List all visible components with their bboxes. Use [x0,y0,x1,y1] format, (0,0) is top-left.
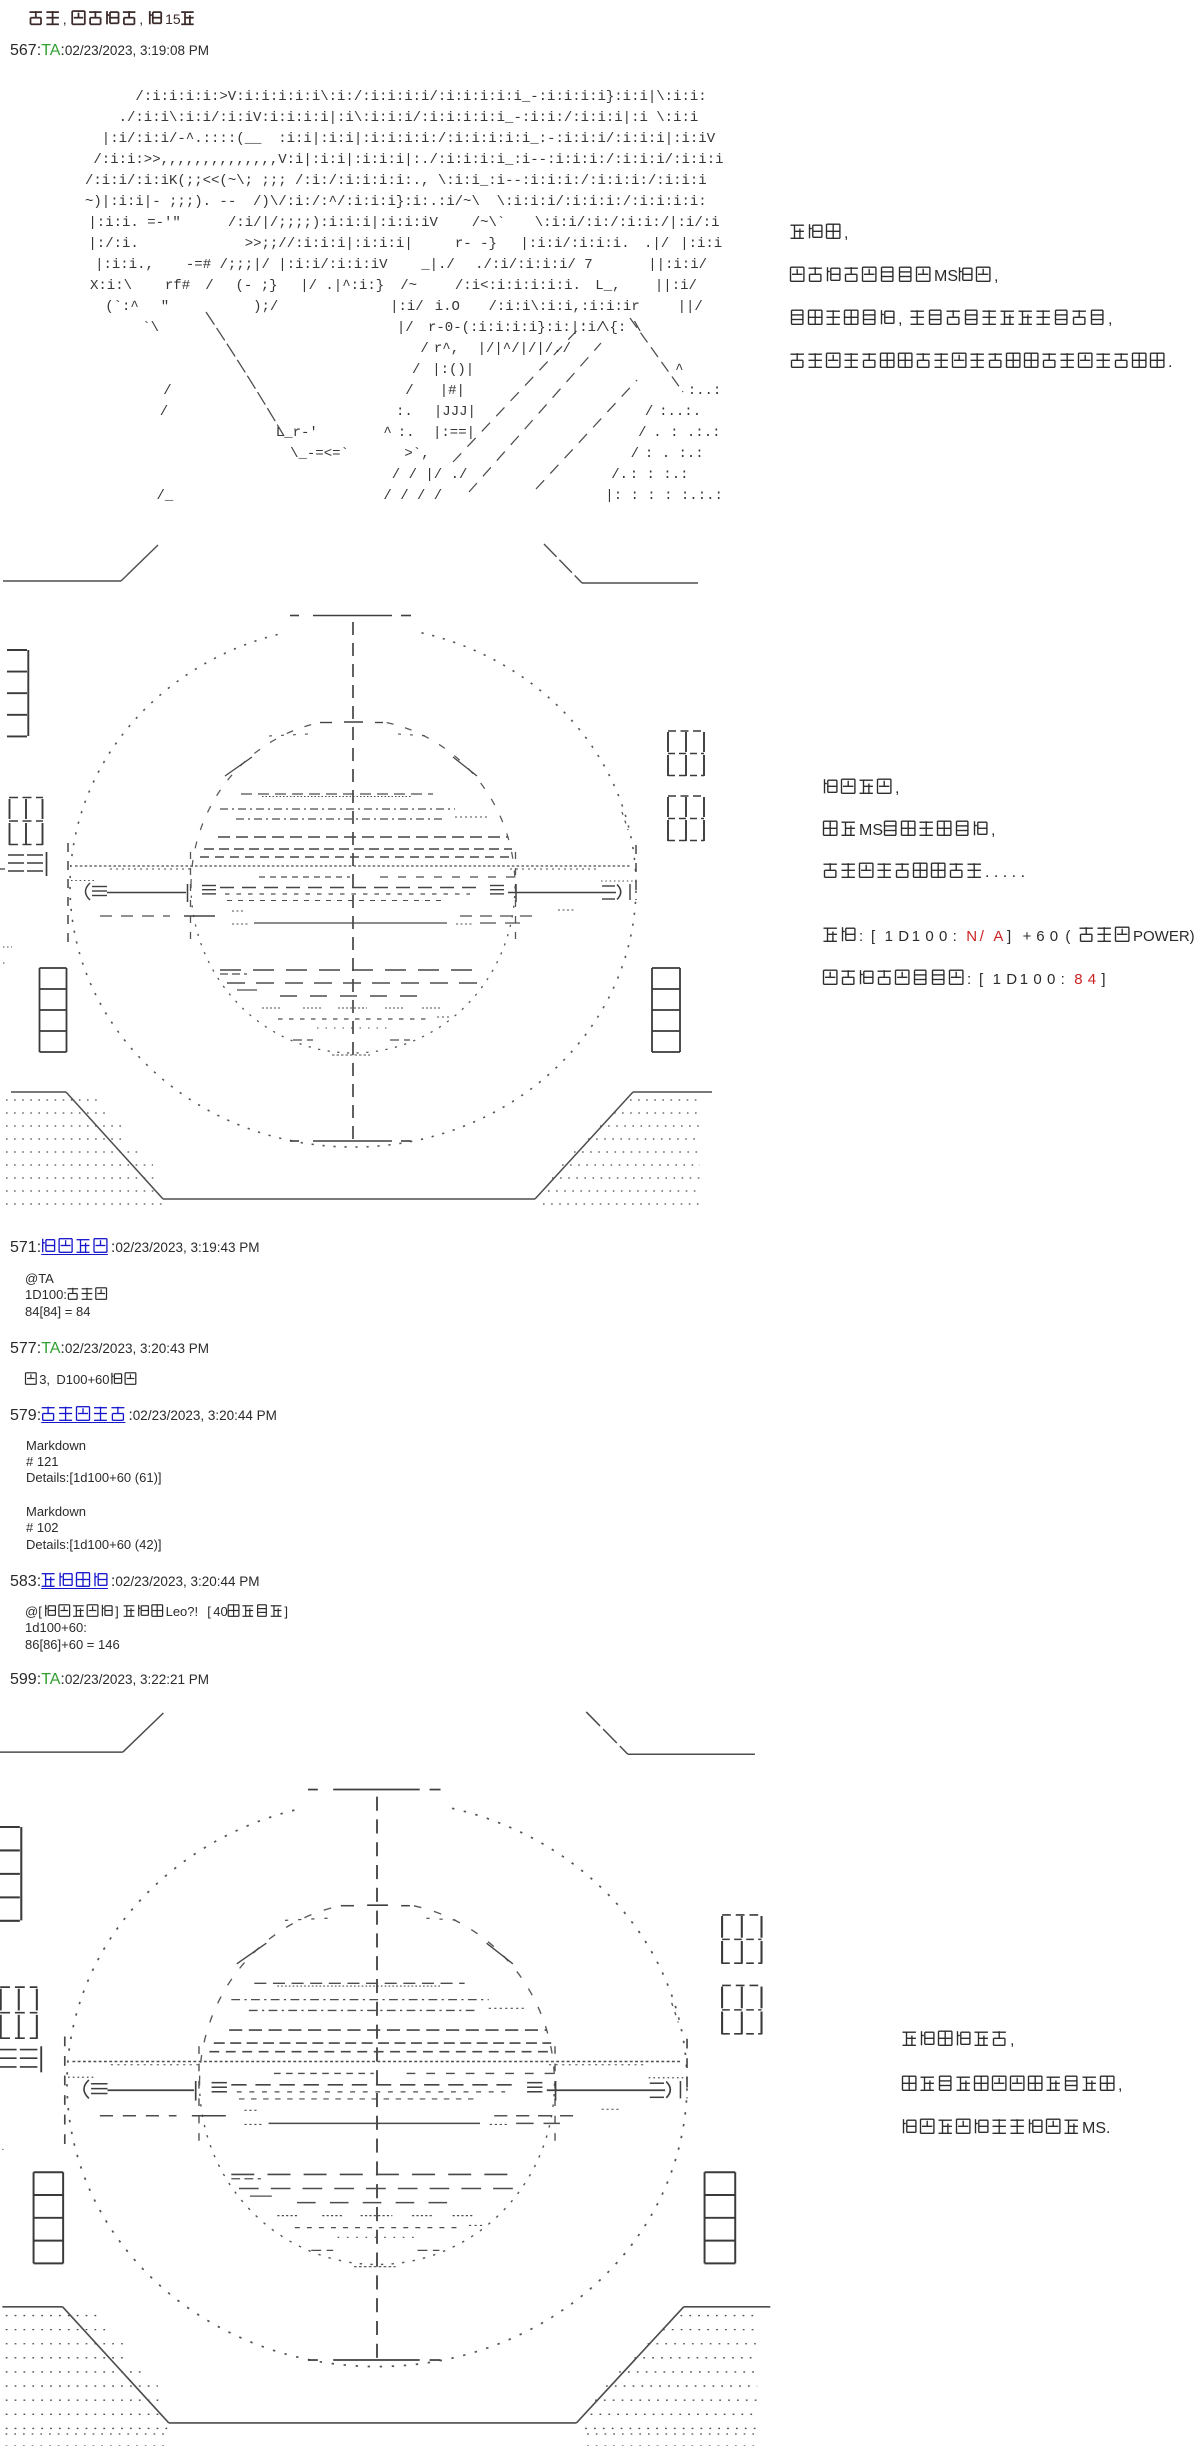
svg-text:02/23/2023, 3:20:44 PM: 02/23/2023, 3:20:44 PM [133,1408,277,1423]
svg-text:|#|: |#| [440,383,465,399]
svg-text::: : [953,928,957,945]
svg-text:0: 0 [925,928,933,945]
svg-text:Markdown: Markdown [26,1438,86,1453]
svg-text:(- ;}: (- ;} [236,278,278,294]
svg-text:,: , [1118,2077,1122,2094]
svg-text:D: D [898,928,909,945]
svg-text:|:==|: |:==| [433,425,475,441]
svg-text:|:/:i.: |:/:i. [88,236,138,252]
svg-text:/ / |/ ./: / / |/ ./ [392,467,468,483]
svg-text:D100+60: D100+60 [56,1372,113,1387]
svg-text:84[84] = 84: 84[84] = 84 [25,1304,90,1319]
svg-text::.: :. [398,425,415,441]
svg-text::: : [859,928,863,945]
svg-text:X:i:\: X:i:\ [90,278,132,294]
svg-text:/ / / /: / / / / [383,488,442,504]
svg-text:);/: );/ [253,299,278,315]
svg-text:]: ] [284,1604,288,1619]
svg-text:86[86]+60 = 146: 86[86]+60 = 146 [25,1637,120,1652]
svg-text:TA: TA [41,1671,61,1688]
svg-text:599:: 599: [10,1671,41,1688]
svg-text:1d100+60:: 1d100+60: [25,1620,87,1635]
svg-text:02/23/2023, 3:22:21 PM: 02/23/2023, 3:22:21 PM [65,1672,209,1687]
svg-text:|:i:i.,: |:i:i., [95,257,154,273]
svg-text:/: / [160,404,168,420]
svg-text:/: / [645,404,653,420]
svg-text:>`,: >`, [404,446,429,462]
svg-text::..:.: :..:. [659,404,701,420]
svg-text:||:i/: ||:i/ [655,278,697,294]
svg-text:^: ^ [675,362,683,378]
svg-text:||/: ||/ [678,299,703,315]
svg-text:|:()|: |:()| [432,362,474,378]
svg-text:# 102: # 102 [26,1520,59,1535]
svg-text:/~\`: /~\` [472,215,506,231]
svg-text:[: [ [871,928,876,945]
svg-text:Markdown: Markdown [26,1504,86,1519]
svg-text:|:i/: |:i/ [390,299,424,315]
svg-text:MS: MS [1082,2120,1106,2137]
svg-text:577:: 577: [10,1340,41,1357]
svg-text:TA: TA [41,1340,61,1357]
svg-text:POWER): POWER) [1133,928,1195,945]
svg-text:|JJJ|: |JJJ| [434,404,476,420]
svg-text:.: . [1168,354,1172,371]
svg-text:r-0-(:i:i:i:i}:i:|:i/: r-0-(:i:i:i:i}:i:|:i/ [428,320,604,336]
svg-text:1: 1 [885,928,893,945]
svg-text:Details:[1d100+60 (61)]: Details:[1d100+60 (61)] [26,1470,162,1485]
svg-text:\: \ [633,320,641,336]
svg-text:,: , [994,268,998,285]
svg-text:/: / [420,341,428,357]
svg-text:\:i:i/:i:/:i:i:/|:i/:i: \:i:i/:i:/:i:i:/|:i/:i [535,215,720,231]
svg-text:": " [161,299,169,315]
svg-text:,: , [844,225,848,242]
svg-text:MS: MS [859,822,883,839]
svg-text:|:i:i/:i:i:i.: |:i:i/:i:i:i. [520,236,629,252]
svg-text:/~: /~ [400,278,417,294]
svg-text:1: 1 [1020,971,1028,988]
svg-text:./:i:i\:i:i/:i:iV:i:i:i:i|:i\:: ./:i:i\:i:i/:i:iV:i:i:i:i|:i\:i:i:i/:i:i… [119,110,699,126]
svg-text:40: 40 [213,1604,227,1619]
svg-text:Details:[1d100+60 (42)]: Details:[1d100+60 (42)] [26,1537,162,1552]
svg-text:02/23/2023, 3:19:43 PM: 02/23/2023, 3:19:43 PM [115,1240,259,1255]
svg-text:0: 0 [1047,971,1055,988]
svg-text:\{:: \{: [601,320,626,336]
svg-text:0: 0 [1033,971,1041,988]
svg-text:0: 0 [1050,928,1058,945]
svg-text:,: , [46,1372,53,1387]
svg-text:/: / [980,928,985,945]
svg-text:||:i:i/: ||:i:i/ [648,257,707,273]
svg-text:~)|:i:i|- ;;;). -- /)\/:i:/:^: ~)|:i:i|- ;;;). -- /)\/:i:/:^/:i:i:i}:i:… [85,194,707,210]
svg-text:02/23/2023, 3:19:08 PM: 02/23/2023, 3:19:08 PM [65,43,209,58]
svg-text:]: ] [1101,971,1105,988]
svg-text:(: ( [1065,928,1070,945]
svg-text:|/: |/ [397,320,414,336]
svg-text:/.: /. [611,467,628,483]
svg-text:,: , [139,11,147,27]
svg-text:/_: /_ [157,488,174,504]
svg-text:,: , [1108,311,1112,328]
svg-text:+: + [1023,928,1032,945]
svg-text:: . :.:: : . :.: [645,446,704,462]
svg-text:i.O: i.O [435,299,460,315]
svg-text:^: ^ [383,425,391,441]
svg-text:6: 6 [1036,928,1044,945]
svg-text:567:: 567: [10,42,41,59]
svg-text:]: ] [115,1604,122,1619]
svg-text:TA: TA [41,42,61,59]
svg-text:?!: ?! [187,1604,198,1619]
svg-text:|: : : : :.:.:: |: : : : :.:.: [605,488,723,504]
svg-text:8: 8 [1074,971,1082,988]
svg-text:02/23/2023, 3:20:43 PM: 02/23/2023, 3:20:43 PM [65,1341,209,1356]
svg-text::: : [967,971,971,988]
svg-text:_|./: _|./ [420,257,455,273]
svg-text:/: / [405,383,413,399]
svg-text:/: / [638,425,646,441]
svg-text:/:i:i/:i:iK(;;<<(~\; ;;; /:i:/: /:i:i/:i:iK(;;<<(~\; ;;; /:i:/:i:i:i:i:.… [85,173,707,189]
svg-text:`\: `\ [142,320,159,336]
svg-text:rf#: rf# [165,278,190,294]
svg-text:L_r-': L_r-' [276,425,318,441]
svg-text:r^,: r^, [434,341,459,357]
svg-text:|:i:i. =-'": |:i:i. =-'" [88,215,180,231]
svg-text:0: 0 [939,928,947,945]
svg-text:: : :.:: : : :.: [630,467,689,483]
svg-text:/: / [412,362,420,378]
svg-text:.: . [1106,2120,1110,2137]
svg-text:.|/: .|/ [644,236,669,252]
svg-text:15: 15 [165,11,181,27]
svg-text:\_-=<=`: \_-=<=` [290,446,349,462]
svg-text:3: 3 [39,1372,46,1387]
svg-text:]: ] [1007,928,1011,945]
svg-text:A: A [993,928,1003,945]
svg-text:[: [ [38,1604,42,1619]
svg-text:|/|^/|/|/.: |/|^/|/|/. [478,341,562,357]
svg-text:583:: 583: [10,1573,41,1590]
svg-text:MS: MS [934,268,958,285]
svg-text:|:i:i: |:i:i [680,236,722,252]
svg-text:L_,: L_, [595,278,620,294]
svg-text:-=# /;;;|/ |:i:i/:i:i:iV: -=# /;;;|/ |:i:i/:i:i:iV [186,257,388,273]
svg-text:571:: 571: [10,1239,41,1256]
svg-text::.: :. [396,404,413,420]
svg-text:,: , [63,11,71,27]
svg-text:/:i/|/;;;;):i:i:i|:i:i:iV: /:i/|/;;;;):i:i:i|:i:i:iV [228,215,439,231]
svg-text:./:i/:i:i:i/ 7: ./:i/:i:i:i/ 7 [475,257,593,273]
svg-text:/: / [163,383,171,399]
svg-text:[: [ [207,1604,211,1619]
svg-text:Leo: Leo [166,1604,188,1619]
svg-text:1D100:: 1D100: [25,1287,67,1302]
svg-text:# 121: # 121 [26,1454,59,1469]
svg-text::: : [1061,971,1065,988]
svg-text:[: [ [979,971,984,988]
svg-text:@TA: @TA [25,1271,54,1286]
svg-text:579:: 579: [10,1407,41,1424]
svg-text:,: , [991,822,995,839]
svg-text:. : .:.:: . : .:.: [653,425,720,441]
svg-text:D: D [1006,971,1017,988]
svg-text:@: @ [25,1604,38,1619]
svg-text:/: / [631,446,639,462]
svg-text:1: 1 [912,928,920,945]
svg-text:>>;;//:i:i:i|:i:i:i|: >>;;//:i:i:i|:i:i:i| [245,236,413,252]
svg-text:/:i<:i:i:i:i:i.: /:i<:i:i:i:i:i. [455,278,581,294]
svg-text:,: , [898,311,907,328]
svg-text:|/ .|^:i:}: |/ .|^:i:} [300,278,384,294]
svg-text:1: 1 [993,971,1001,988]
svg-text:|:i/:i:i/-^.::::(__ :i:i|:i:i: |:i/:i:i/-^.::::(__ :i:i|:i:i|:i:i:i:i:/… [102,131,716,147]
svg-text:. . . . .: . . . . . [985,864,1025,881]
svg-text:/: / [205,278,213,294]
svg-text:(`:^: (`:^ [105,299,139,315]
svg-text:,: , [1010,2032,1014,2049]
svg-text:/:i:i:>>,,,,,,,,,,,,,,V:i|:i:i: /:i:i:>>,,,,,,,,,,,,,,V:i|:i:i|:i:i:i|:.… [93,152,723,168]
svg-text:/:i:i:i:i:>V:i:i:i:i:i\:i:/:i:: /:i:i:i:i:>V:i:i:i:i:i\:i:/:i:i:i:i/:i:i… [135,89,706,105]
svg-text:,: , [895,780,899,797]
svg-text:/:i:i\:i:i,:i:i:ir: /:i:i\:i:i,:i:i:ir [489,299,640,315]
svg-text:N: N [966,928,977,945]
svg-text:4: 4 [1088,971,1096,988]
svg-text::..:: :..: [688,383,722,399]
svg-text:r- -}: r- -} [455,236,497,252]
svg-text:02/23/2023, 3:20:44 PM: 02/23/2023, 3:20:44 PM [115,1574,259,1589]
svg-text:/: / [563,341,571,357]
